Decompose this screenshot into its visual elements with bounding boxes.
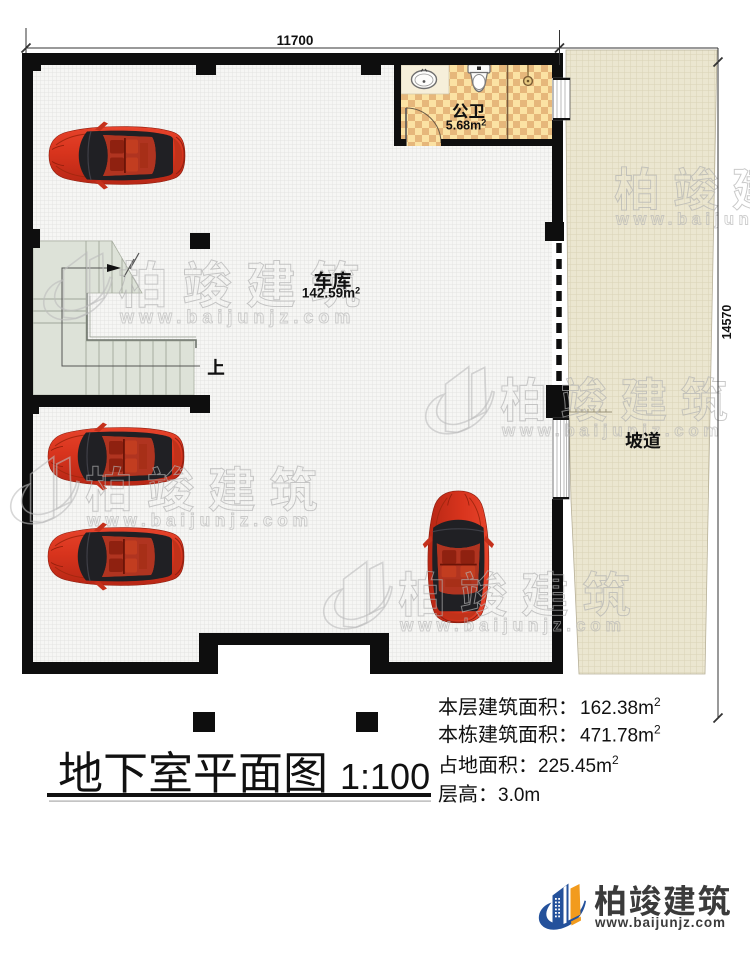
svg-text:1:100: 1:100 (340, 756, 430, 797)
svg-text:www.baijunjz.com: www.baijunjz.com (86, 510, 313, 530)
svg-text:471.78m2: 471.78m2 (580, 723, 661, 747)
svg-text:142.59m2: 142.59m2 (302, 286, 360, 301)
svg-text:5.68m2: 5.68m2 (446, 118, 486, 133)
svg-text:www.baijunjz.com: www.baijunjz.com (119, 307, 355, 327)
svg-text:www.baijunjz.com: www.baijunjz.com (399, 615, 626, 635)
svg-text:162.38m2: 162.38m2 (580, 695, 661, 719)
svg-text:11700: 11700 (277, 33, 314, 48)
svg-text:225.45m2: 225.45m2 (538, 753, 619, 777)
svg-text:www.baijunjz.com: www.baijunjz.com (615, 209, 750, 228)
svg-text:14570: 14570 (720, 305, 734, 340)
svg-text:3.0m: 3.0m (498, 785, 540, 806)
svg-text:www.baijunjz.com: www.baijunjz.com (501, 421, 723, 440)
svg-text:www.baijunjz.com: www.baijunjz.com (594, 915, 726, 930)
